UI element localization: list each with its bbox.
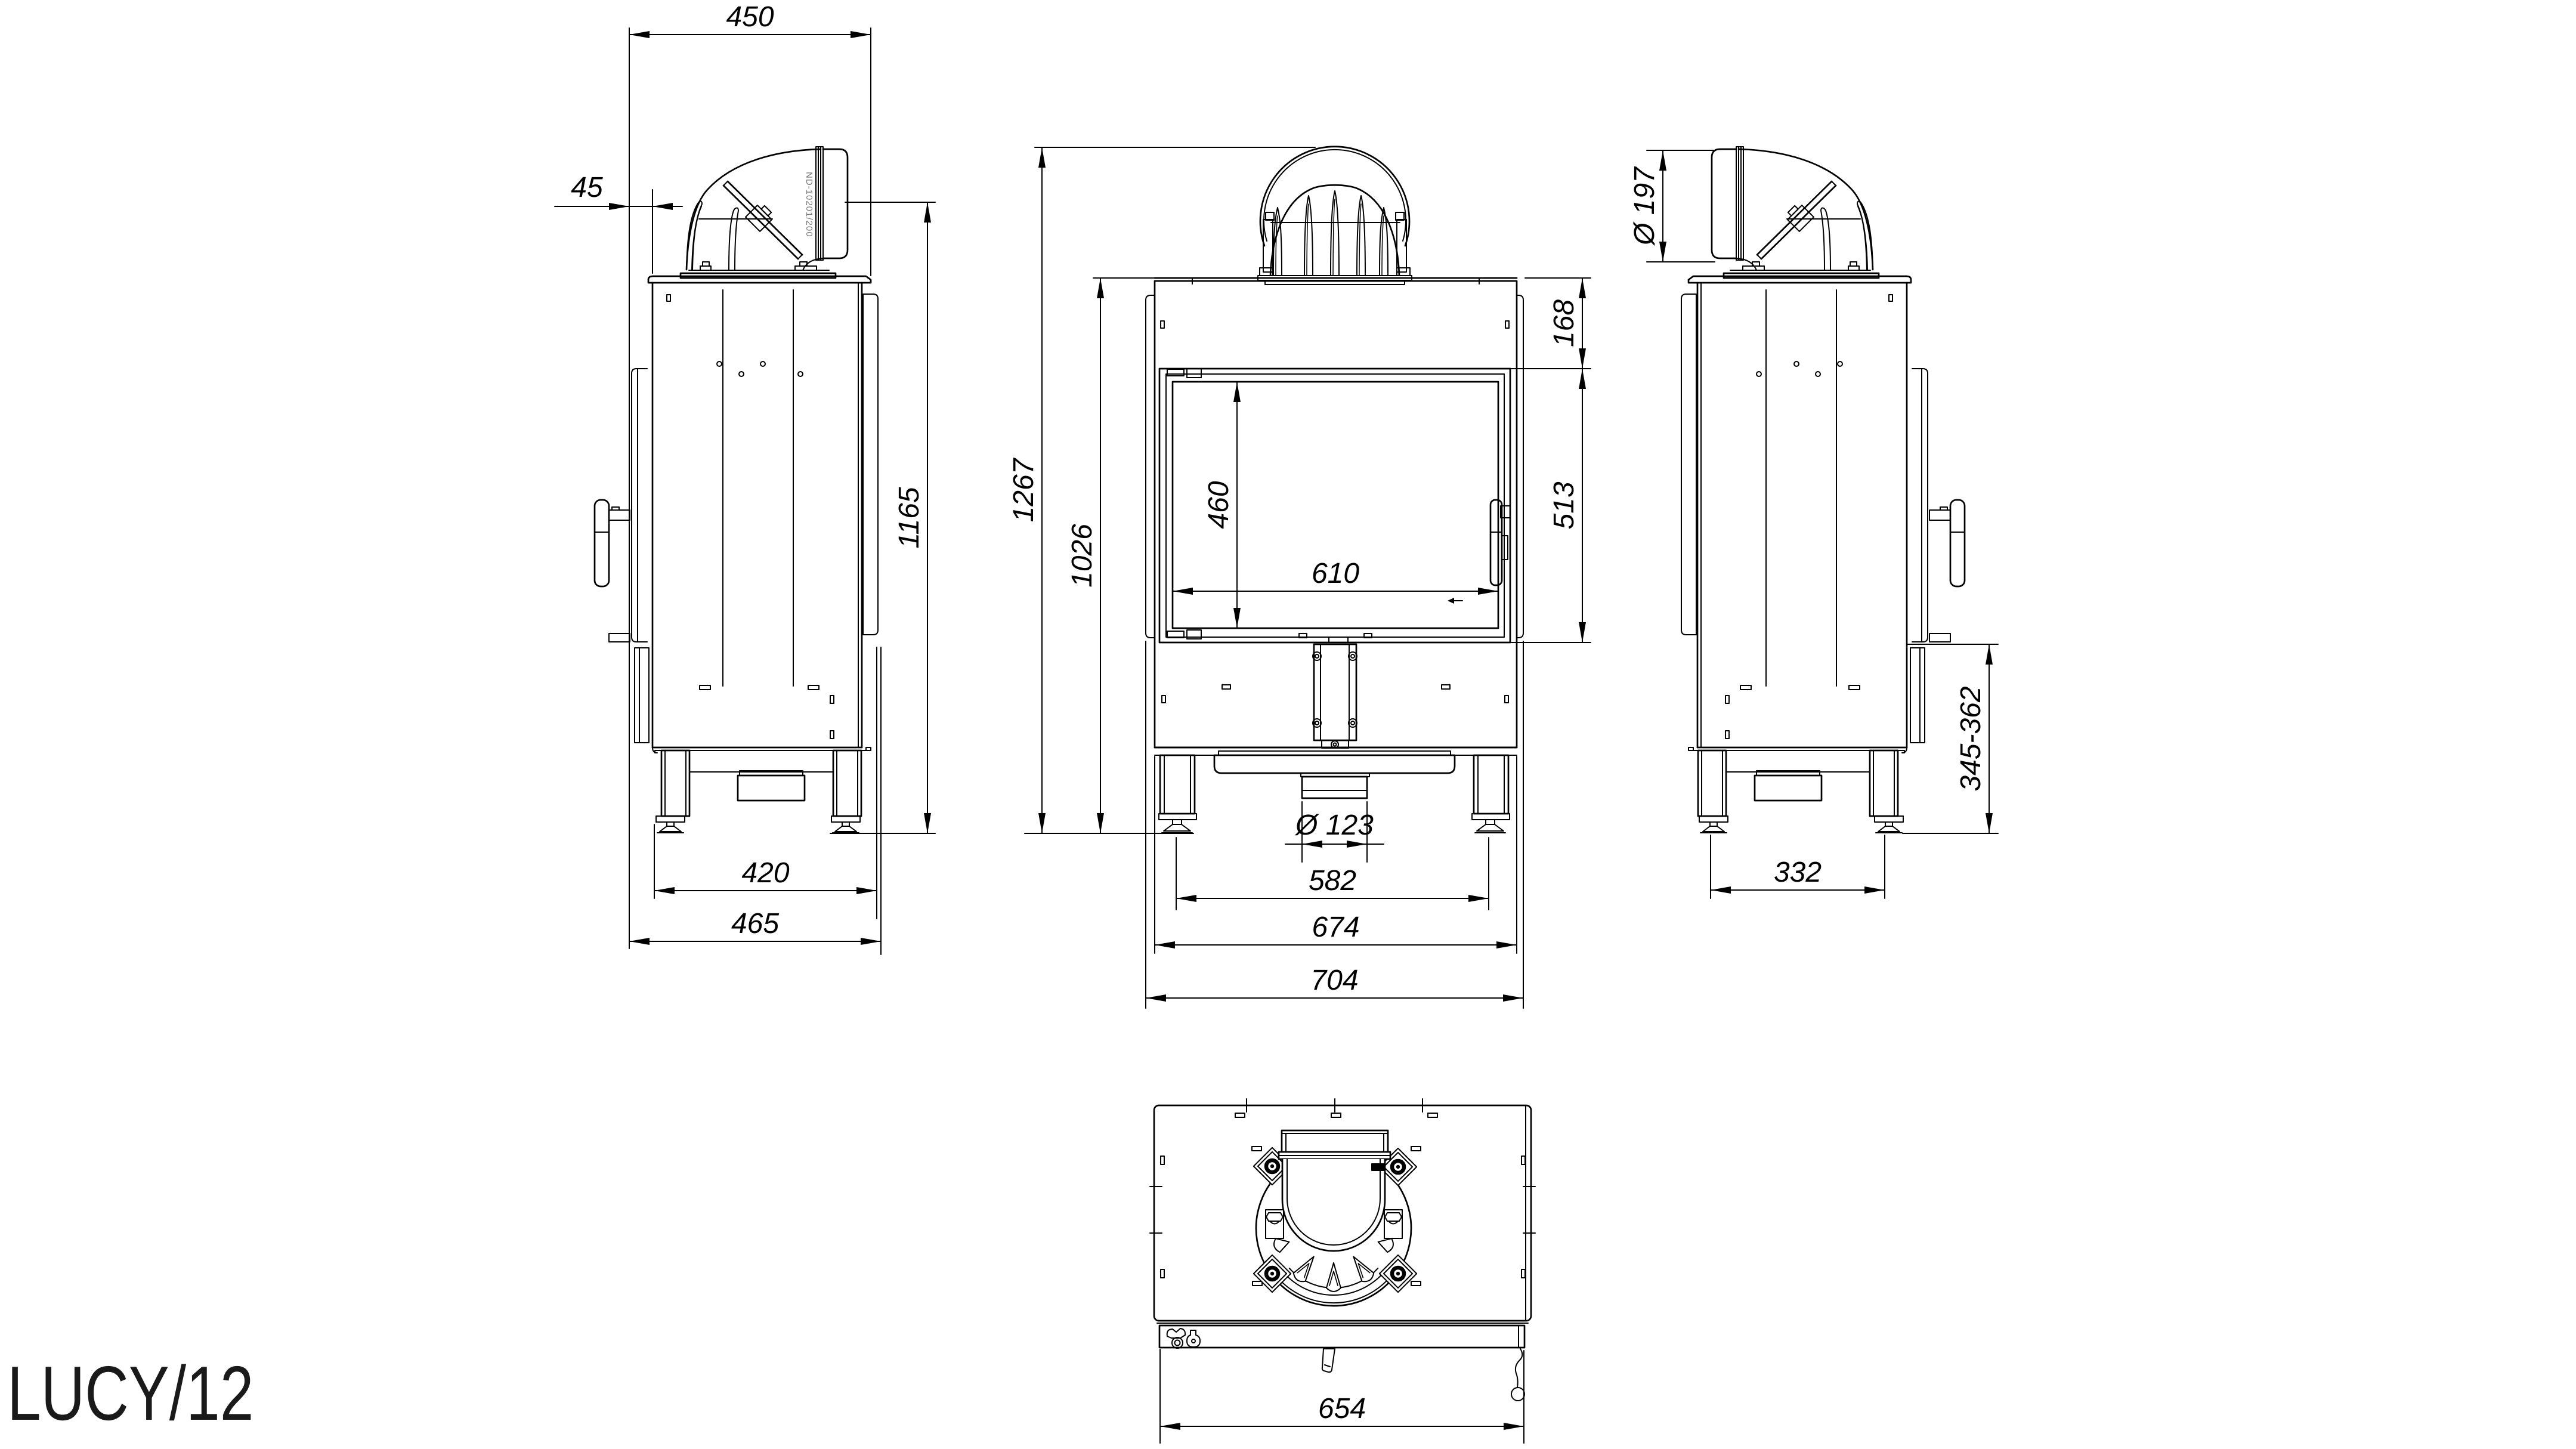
svg-text:1026: 1026 [1066,524,1098,588]
svg-text:465: 465 [731,908,779,940]
svg-text:654: 654 [1318,1393,1366,1425]
svg-text:168: 168 [1548,299,1580,347]
svg-text:704: 704 [1310,965,1358,996]
svg-text:420: 420 [741,857,789,889]
svg-text:460: 460 [1203,481,1235,529]
svg-text:ND-10201/200: ND-10201/200 [804,172,814,237]
svg-text:45: 45 [571,172,603,203]
svg-text:1165: 1165 [893,487,925,549]
svg-text:332: 332 [1774,857,1822,888]
svg-text:Ø 123: Ø 123 [1294,810,1374,841]
svg-text:Ø 197: Ø 197 [1629,166,1660,246]
svg-text:582: 582 [1309,865,1356,897]
svg-text:450: 450 [726,1,774,33]
svg-text:1267: 1267 [1008,457,1040,522]
svg-text:610: 610 [1312,558,1359,589]
svg-text:674: 674 [1312,912,1359,943]
svg-text:513: 513 [1548,481,1580,529]
svg-text:LUCY/12: LUCY/12 [7,1350,253,1436]
svg-text:345-362: 345-362 [1955,686,1987,791]
